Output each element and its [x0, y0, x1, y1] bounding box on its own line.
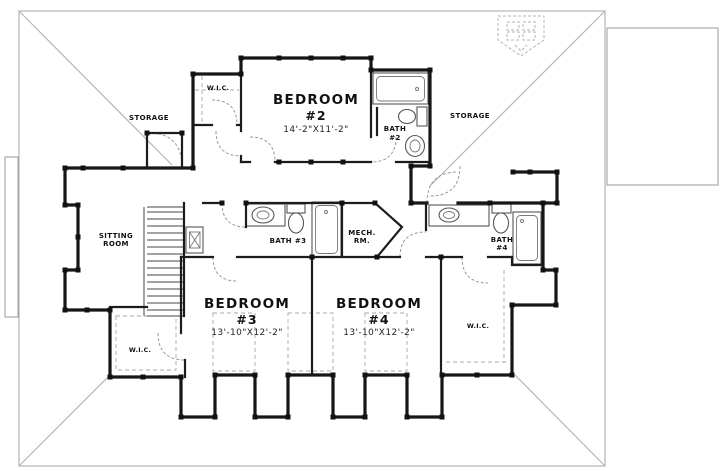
bedroom2-dims: 14'-2"X11'-2" — [283, 125, 348, 135]
bedroom2-number: #2 — [305, 108, 326, 123]
toilet-icon — [417, 107, 427, 126]
bath2-fixtures — [373, 73, 428, 157]
sink-icon — [252, 207, 274, 223]
bath3-fixtures — [246, 202, 341, 257]
bedroom4-dims: 13'-10"X12'-2" — [343, 328, 415, 338]
bedroom2-name: BEDROOM — [273, 92, 359, 108]
toilet-icon — [287, 204, 305, 213]
toilet-icon — [492, 204, 511, 213]
storage-right-label: STORAGE — [450, 112, 490, 120]
bedroom4-number: #4 — [368, 312, 389, 327]
builder-stamp-icon — [498, 16, 544, 56]
mech-room-doors — [375, 203, 402, 257]
sitting-room-label-1: SITTING — [99, 232, 133, 240]
wic-right-label: W.I.C. — [467, 323, 489, 330]
bedroom3-dims: 13'-10"X12'-2" — [211, 328, 283, 338]
bedroom4-name: BEDROOM — [336, 296, 422, 312]
bath2-label-2: #2 — [389, 134, 401, 142]
mech-room-label-1: MECH. — [348, 229, 375, 237]
sink-icon — [406, 136, 425, 157]
bath4-label-1: BATH — [491, 236, 513, 244]
wic-left-label: W.I.C. — [129, 347, 151, 354]
bath3-label: BATH #3 — [270, 237, 307, 245]
sink-icon — [439, 208, 459, 222]
bedroom3-number: #3 — [236, 312, 257, 327]
mech-room-label-2: RM. — [354, 237, 370, 245]
bathtub-icon — [373, 73, 428, 104]
floor-plan-drawing: STORAGE STORAGE W.I.C. BEDROOM #2 14'-2"… — [0, 0, 728, 471]
bath2-label-1: BATH — [384, 125, 406, 133]
staircase — [144, 207, 203, 316]
bedroom3-name: BEDROOM — [204, 296, 290, 312]
left-roof-block — [5, 157, 18, 317]
right-roof-block — [607, 28, 718, 185]
sitting-room-label-2: ROOM — [103, 240, 129, 248]
bathtub-icon — [513, 212, 541, 264]
storage-left-label: STORAGE — [129, 114, 169, 122]
bath4-fixtures — [429, 204, 541, 264]
bath4-label-2: #4 — [496, 244, 508, 252]
floor-plan-sheet: STORAGE STORAGE W.I.C. BEDROOM #2 14'-2"… — [0, 0, 728, 471]
wic-top-label: W.I.C. — [207, 85, 229, 92]
